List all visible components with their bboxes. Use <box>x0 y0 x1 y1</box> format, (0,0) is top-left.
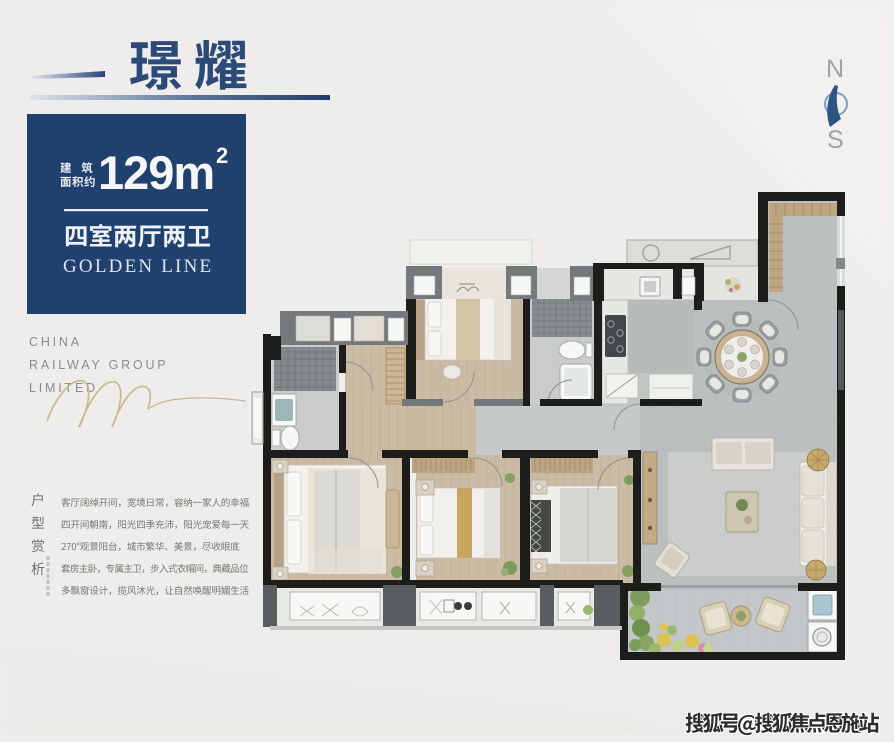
svg-text:RAILWAY GROUP: RAILWAY GROUP <box>29 358 168 372</box>
svg-text:129m: 129m <box>98 146 214 199</box>
svg-text:S: S <box>827 126 844 154</box>
svg-text:GOLDEN LINE: GOLDEN LINE <box>63 256 213 277</box>
svg-text:2: 2 <box>216 143 228 168</box>
svg-text:N: N <box>826 55 844 83</box>
svg-text:CHINA: CHINA <box>29 335 82 349</box>
